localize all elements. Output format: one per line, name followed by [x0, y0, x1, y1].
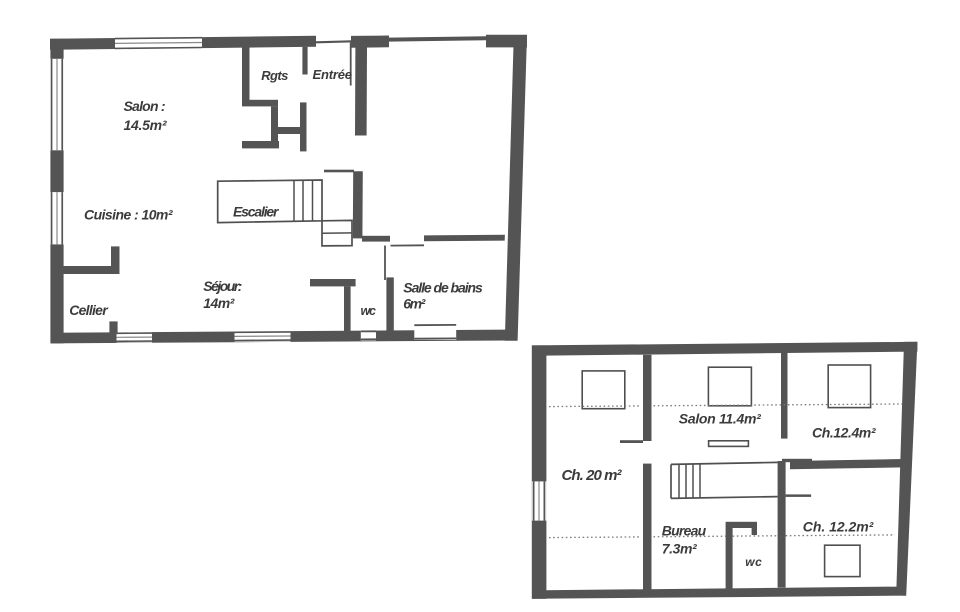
svg-text:Cellier: Cellier	[69, 302, 109, 318]
svg-text:Salon :: Salon :	[124, 98, 166, 114]
svg-text:Cuisine : 10m²: Cuisine : 10m²	[84, 207, 173, 223]
svg-text:Ch.12.4m²: Ch.12.4m²	[812, 425, 876, 441]
svg-text:14m²: 14m²	[203, 295, 234, 311]
svg-text:Rgts: Rgts	[261, 68, 288, 83]
svg-text:Escalier: Escalier	[233, 204, 280, 220]
svg-text:wc: wc	[361, 304, 377, 318]
svg-text:6m²: 6m²	[403, 296, 425, 312]
svg-text:Séjour:: Séjour:	[203, 278, 242, 294]
svg-text:14.5m²: 14.5m²	[124, 117, 167, 133]
svg-text:wc: wc	[745, 555, 762, 569]
svg-text:Salle de bains: Salle de bains	[403, 280, 483, 296]
svg-text:Salon 11.4m²: Salon 11.4m²	[679, 410, 761, 426]
svg-text:Ch. 12.2m²: Ch. 12.2m²	[803, 519, 874, 535]
svg-text:Entrée: Entrée	[313, 67, 353, 82]
svg-text:7.3m²: 7.3m²	[662, 541, 697, 557]
svg-text:Bureau: Bureau	[662, 523, 707, 539]
svg-text:Ch. 20 m²: Ch. 20 m²	[562, 467, 623, 484]
